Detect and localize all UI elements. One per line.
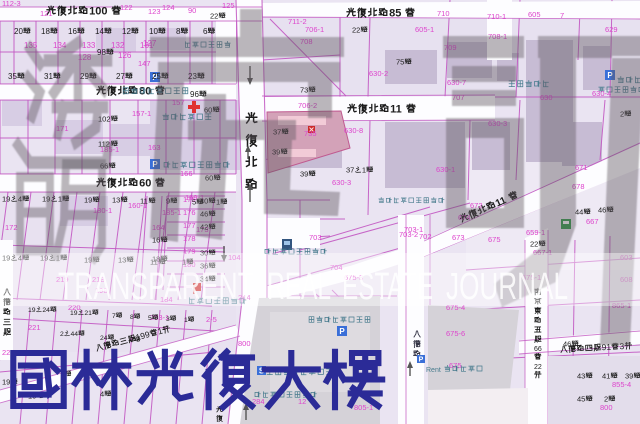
svg-text:P: P [339,327,345,336]
svg-text:5: 5 [192,197,196,206]
svg-text:629: 629 [605,25,618,34]
svg-text:22: 22 [530,239,538,248]
svg-text:5: 5 [148,315,152,322]
svg-text:46: 46 [563,339,571,348]
svg-text:7: 7 [112,313,116,320]
svg-text:706-1: 706-1 [305,25,324,34]
svg-text:8: 8 [130,314,134,321]
svg-text:44: 44 [575,207,583,216]
svg-text:39: 39 [625,371,633,380]
svg-text:703: 703 [309,233,322,242]
svg-text:19: 19 [2,377,10,386]
svg-text:671: 671 [575,163,588,172]
svg-text:44: 44 [71,331,79,338]
svg-text:35: 35 [8,72,17,81]
svg-text:157-1: 157-1 [132,109,151,118]
svg-text:703-2: 703-2 [399,230,418,239]
svg-text:605-1: 605-1 [415,25,434,34]
svg-text:39: 39 [300,169,308,178]
svg-text:132: 132 [111,41,125,50]
svg-text:19: 19 [2,194,10,203]
svg-text:667: 667 [586,217,599,226]
svg-text:2-5: 2-5 [206,315,217,324]
svg-text:ESTATE: ESTATE [342,266,433,308]
svg-text:166: 166 [180,169,193,178]
svg-text:125: 125 [222,1,235,10]
svg-text:24: 24 [42,307,50,314]
svg-text:177: 177 [183,221,196,230]
svg-text:147: 147 [138,59,151,68]
svg-text:7: 7 [560,11,564,20]
svg-text:711-2: 711-2 [288,17,307,26]
svg-text:37: 37 [346,165,354,174]
svg-text:2: 2 [60,331,64,338]
svg-text:11: 11 [140,196,148,205]
svg-text:27: 27 [116,72,125,81]
svg-text:122: 122 [120,3,133,12]
svg-text:178: 178 [183,234,196,243]
svg-text:46: 46 [598,205,606,214]
svg-text:855-4: 855-4 [612,380,631,389]
svg-text:6: 6 [203,27,208,36]
svg-text:800: 800 [238,339,251,348]
svg-text:123: 123 [148,7,161,16]
svg-text:800: 800 [600,403,613,412]
svg-text:112-3: 112-3 [2,0,21,8]
svg-text:630-4: 630-4 [592,89,611,98]
svg-text:710: 710 [437,9,450,18]
svg-text:21: 21 [84,310,92,317]
svg-text:Rent: Rent [426,367,441,374]
svg-text:10: 10 [149,27,158,36]
svg-text:85: 85 [389,8,401,20]
svg-text:80: 80 [139,86,151,98]
svg-text:13: 13 [112,195,120,204]
svg-text:1: 1 [362,165,366,174]
svg-text:8: 8 [176,27,181,36]
svg-text:P: P [419,357,424,364]
svg-text:66: 66 [534,346,542,353]
svg-text:73: 73 [300,86,308,95]
svg-text:43: 43 [577,371,585,380]
svg-text:12: 12 [122,27,131,36]
svg-text:710-1: 710-1 [487,12,506,21]
svg-text:19: 19 [84,195,92,204]
svg-text:22: 22 [210,11,218,20]
svg-text:20: 20 [14,27,23,36]
svg-text:41: 41 [602,371,610,380]
svg-text:630-8: 630-8 [344,126,363,135]
svg-text:75: 75 [396,58,404,67]
svg-text:675: 675 [488,235,501,244]
svg-text:18: 18 [41,27,50,36]
svg-text:133: 133 [82,41,96,50]
svg-text:735: 735 [304,129,317,138]
svg-text:100: 100 [89,6,107,18]
svg-text:673: 673 [452,233,465,242]
svg-text:675-6: 675-6 [446,329,465,338]
svg-text:702: 702 [419,232,432,241]
svg-text:TRANSPARENT: TRANSPARENT [58,266,254,308]
svg-text:221: 221 [28,323,41,332]
svg-text:19: 19 [70,310,78,317]
svg-text:630-2: 630-2 [369,69,388,78]
svg-text:96: 96 [190,90,199,99]
svg-text:4: 4 [100,389,104,398]
svg-text:14: 14 [95,27,104,36]
svg-text:22: 22 [352,26,360,35]
svg-text:605: 605 [528,10,541,19]
svg-text:JOURNAL: JOURNAL [446,266,568,308]
svg-text:805-1: 805-1 [354,403,373,412]
svg-text:3: 3 [166,316,170,323]
svg-text:19: 19 [28,307,36,314]
svg-text:124: 124 [162,3,175,12]
svg-text:31: 31 [44,72,53,81]
svg-text:121: 121 [40,9,53,18]
svg-text:60: 60 [139,178,151,190]
svg-text:REAL: REAL [267,266,331,308]
svg-text:176: 176 [183,208,196,217]
svg-text:12: 12 [298,397,306,406]
svg-text:1: 1 [184,317,188,324]
svg-text:24: 24 [100,335,108,342]
svg-text:126: 126 [118,51,132,60]
svg-text:45: 45 [577,394,585,403]
svg-text:16: 16 [68,27,77,36]
svg-text:22: 22 [534,364,542,371]
svg-text:630-3: 630-3 [332,178,351,187]
svg-text:2: 2 [604,394,608,403]
svg-text:90: 90 [188,6,196,15]
svg-text:11: 11 [390,104,402,116]
svg-text:172: 172 [5,223,18,232]
svg-text:675: 675 [449,361,462,370]
svg-text:7: 7 [130,337,134,344]
